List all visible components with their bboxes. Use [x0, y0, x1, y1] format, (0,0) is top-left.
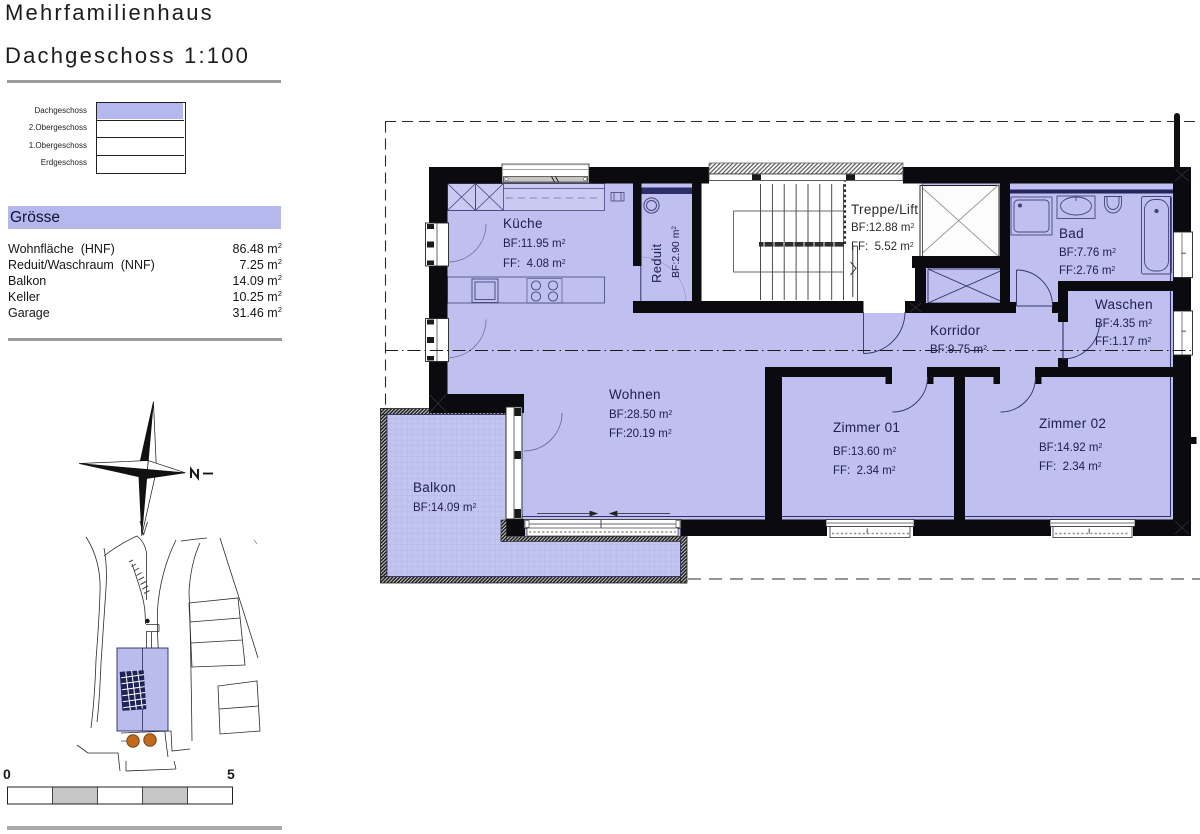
svg-text:FF: 2.34 m2: FF: 2.34 m2: [1039, 461, 1102, 473]
svg-text:Waschen: Waschen: [1095, 297, 1153, 312]
svg-text:Reduit: Reduit: [649, 244, 664, 283]
svg-text:FF: 4.08 m2: FF: 4.08 m2: [503, 258, 566, 270]
svg-text:Korridor: Korridor: [930, 323, 981, 338]
svg-text:Balkon: Balkon: [413, 480, 456, 495]
svg-text:FF:20.19 m2: FF:20.19 m2: [609, 428, 672, 440]
svg-text:BF:9.75 m2: BF:9.75 m2: [930, 344, 987, 356]
svg-text:Küche: Küche: [503, 216, 543, 231]
svg-text:BF:28.50 m2: BF:28.50 m2: [609, 409, 672, 421]
svg-text:FF: 5.52 m2: FF: 5.52 m2: [851, 241, 914, 253]
svg-text:BF:4.35 m2: BF:4.35 m2: [1095, 318, 1152, 330]
svg-text:BF:13.60 m2: BF:13.60 m2: [833, 446, 896, 458]
svg-text:BF:14.09 m2: BF:14.09 m2: [413, 502, 476, 514]
svg-text:Zimmer 02: Zimmer 02: [1039, 416, 1106, 431]
svg-text:BF:11.95 m2: BF:11.95 m2: [503, 238, 566, 250]
svg-text:Zimmer 01: Zimmer 01: [833, 420, 900, 435]
svg-text:BF:2.90 m2: BF:2.90 m2: [670, 226, 682, 278]
svg-text:BF:7.76 m2: BF:7.76 m2: [1059, 247, 1116, 259]
svg-text:Wohnen: Wohnen: [609, 387, 661, 402]
svg-text:FF:1.17 m2: FF:1.17 m2: [1095, 336, 1151, 348]
svg-text:FF: 2.34 m2: FF: 2.34 m2: [833, 465, 896, 477]
svg-text:BF:12.88 m2: BF:12.88 m2: [851, 222, 914, 234]
svg-text:Treppe/Lift: Treppe/Lift: [851, 202, 918, 217]
svg-text:FF:2.76 m2: FF:2.76 m2: [1059, 265, 1115, 277]
svg-text:Bad: Bad: [1059, 226, 1084, 241]
svg-text:BF:14.92 m2: BF:14.92 m2: [1039, 442, 1102, 454]
